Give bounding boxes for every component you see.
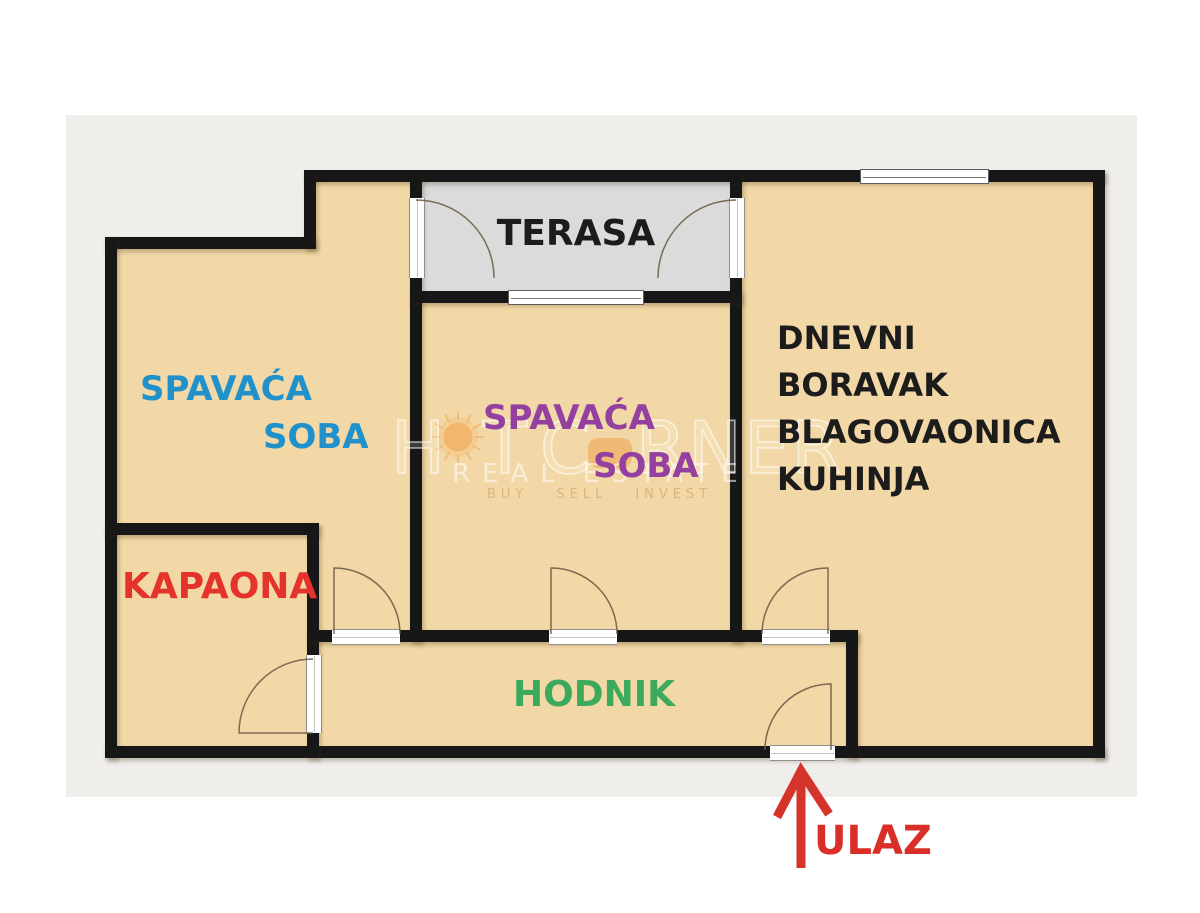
label-living-line4: KUHINJA [777,456,1061,503]
door-bedroom-mid [549,629,617,645]
label-living-line2: BORAVAK [777,362,1061,409]
wall-bottom-outer [105,746,1105,758]
watermark-letter-h: H [391,412,447,484]
window-living [860,169,989,184]
label-kapaona: KAPAONA [122,568,317,606]
label-bedroom-mid-line1: SPAVAĆA [483,401,655,437]
wall-kapaona-top [105,523,319,535]
door-entrance [770,745,835,761]
label-living-room: DNEVNI BORAVAK BLAGOVAONICA KUHINJA [777,315,1061,503]
label-ulaz: ULAZ [814,820,932,862]
door-living [762,629,830,645]
door-bedroom-left [332,629,400,645]
label-hodnik: HODNIK [513,676,675,714]
label-living-line1: DNEVNI [777,315,1061,362]
label-terasa: TERASA [422,215,730,253]
label-bedroom-mid-line2: SOBA [593,449,699,485]
watermark-motto-word1: BUY [487,487,528,502]
watermark-motto-word3: INVEST [635,487,712,502]
wall-top-left-outer [105,237,316,249]
label-bedroom-left-line2: SOBA [263,420,369,456]
wall-hallway-living [846,630,858,758]
floor-plan-page: H T C RNER REALESTATE BUYSELLINVEST TERA… [0,0,1200,913]
window-terrace [508,290,644,305]
label-bedroom-left-line1: SPAVAĆA [140,372,312,408]
label-living-line3: BLAGOVAONICA [777,409,1061,456]
door-terrace-right [729,198,745,278]
door-kapaona [306,655,322,733]
watermark-motto: BUYSELLINVEST [487,487,712,502]
wall-left-outer [105,237,117,758]
watermark-motto-word2: SELL [556,487,607,502]
wall-right-outer [1093,170,1105,758]
watermark-tagline-word1: REAL [452,459,567,489]
wall-top-jog [304,170,316,249]
